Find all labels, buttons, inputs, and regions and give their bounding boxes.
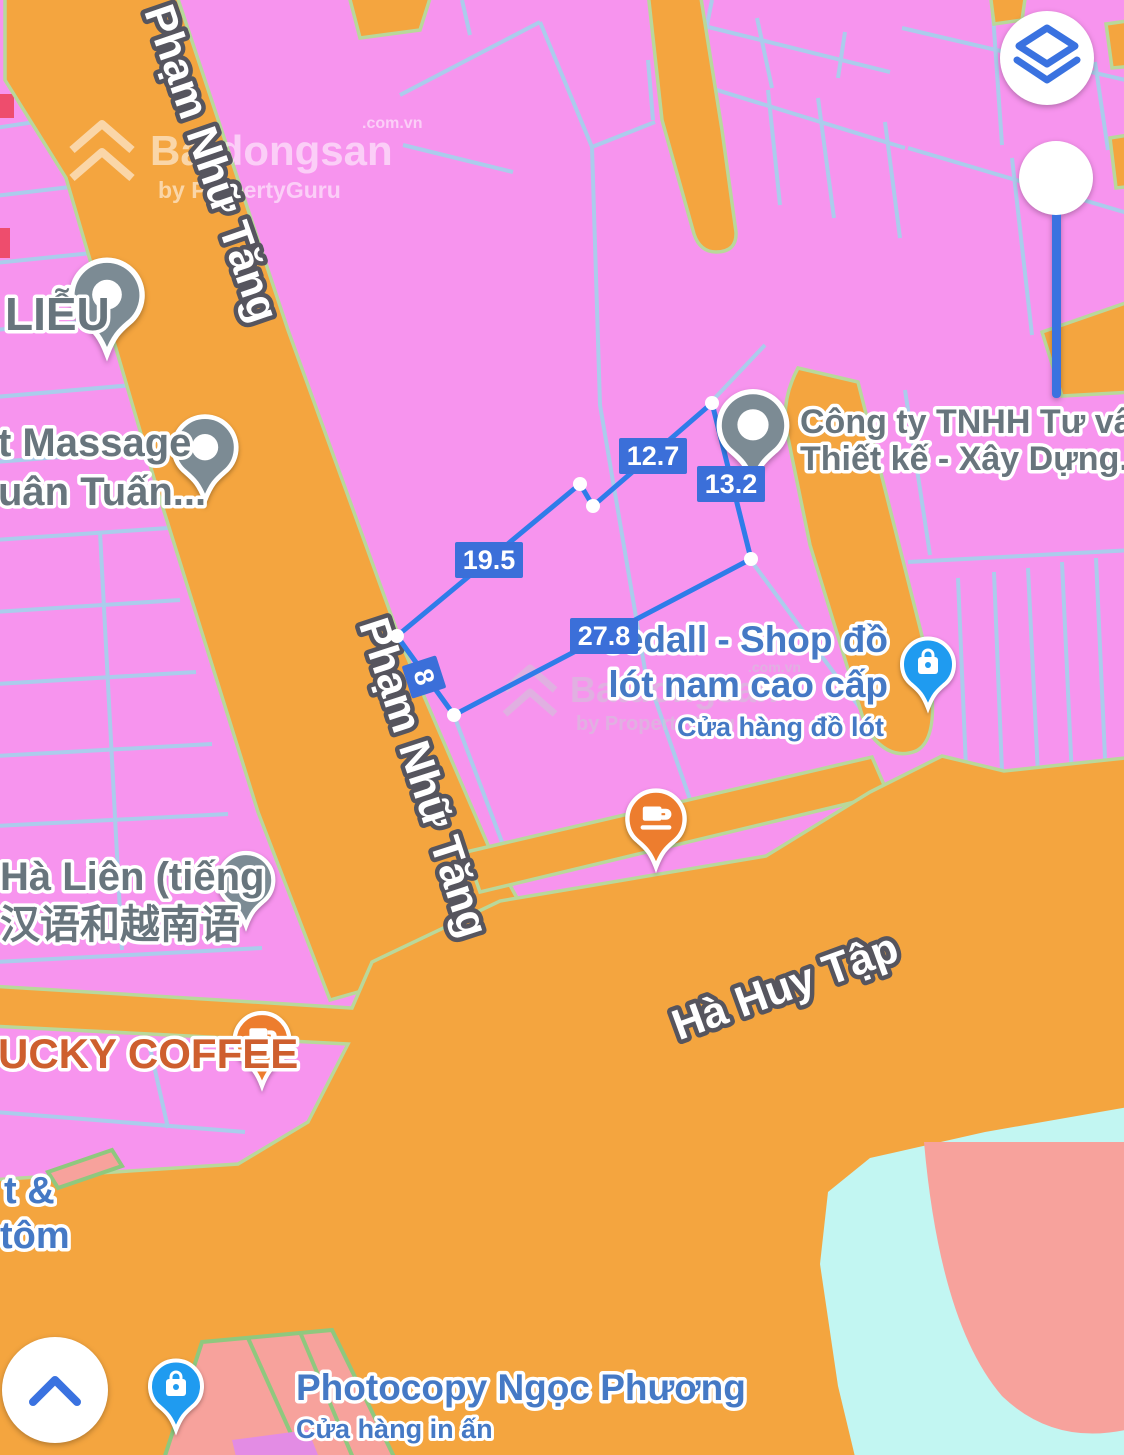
- svg-text:lót nam cao cấp: lót nam cao cấp: [608, 664, 888, 705]
- svg-text:t Massage: t Massage: [0, 421, 191, 465]
- svg-text:Cửa hàng đồ lót: Cửa hàng đồ lót: [677, 712, 884, 742]
- svg-text:Thiết kế - Xây Dựng...: Thiết kế - Xây Dựng...: [800, 440, 1124, 478]
- svg-text:13.2: 13.2: [705, 469, 758, 499]
- place-dot-icon: [192, 434, 218, 460]
- measurement-label-left-upper: 19.5: [455, 542, 523, 578]
- expand-button[interactable]: [2, 1337, 108, 1443]
- coffee-cup-icon: [641, 807, 672, 830]
- svg-text:UCKY COFFEE: UCKY COFFEE: [0, 1030, 298, 1077]
- map-viewport[interactable]: Batdongsan .com.vn by PropertyGuru Batdo…: [0, 0, 1124, 1455]
- svg-text:19.5: 19.5: [463, 545, 516, 575]
- svg-text:Công ty TNHH Tư vấn: Công ty TNHH Tư vấn: [800, 403, 1124, 441]
- svg-text:27.8: 27.8: [578, 621, 631, 651]
- svg-text:uân Tuấn...: uân Tuấn...: [0, 470, 206, 514]
- measurement-label-top: 12.7: [619, 438, 687, 474]
- svg-text:LIỄU: LIỄU: [5, 288, 110, 340]
- svg-text:eedall - Shop đồ: eedall - Shop đồ: [602, 619, 888, 660]
- poi-label-lieu[interactable]: LIỄU: [5, 288, 110, 340]
- svg-text:Photocopy Ngọc Phương: Photocopy Ngọc Phương: [296, 1367, 746, 1408]
- measurement-label-bottom: 27.8: [570, 618, 638, 654]
- svg-text:Hà Liên (tiếng: Hà Liên (tiếng: [0, 855, 264, 899]
- svg-text:12.7: 12.7: [627, 441, 680, 471]
- poi-label-lucky-coffee[interactable]: UCKY COFFEE: [0, 1030, 298, 1077]
- svg-text:tôm: tôm: [0, 1215, 70, 1257]
- layers-button[interactable]: [1000, 11, 1094, 105]
- svg-text:.com.vn: .com.vn: [362, 115, 422, 132]
- svg-text:t &: t &: [4, 1170, 55, 1212]
- map-canvas[interactable]: Batdongsan .com.vn by PropertyGuru Batdo…: [0, 0, 1124, 1455]
- measurement-label-right: 13.2: [697, 466, 765, 502]
- place-dot-icon: [737, 409, 768, 440]
- poi-label-company[interactable]: Công ty TNHH Tư vấn Thiết kế - Xây Dựng.…: [800, 403, 1124, 478]
- svg-text:汉语和越南语: 汉语和越南语: [0, 903, 240, 947]
- svg-text:Cửa hàng in ấn: Cửa hàng in ấn: [296, 1414, 493, 1444]
